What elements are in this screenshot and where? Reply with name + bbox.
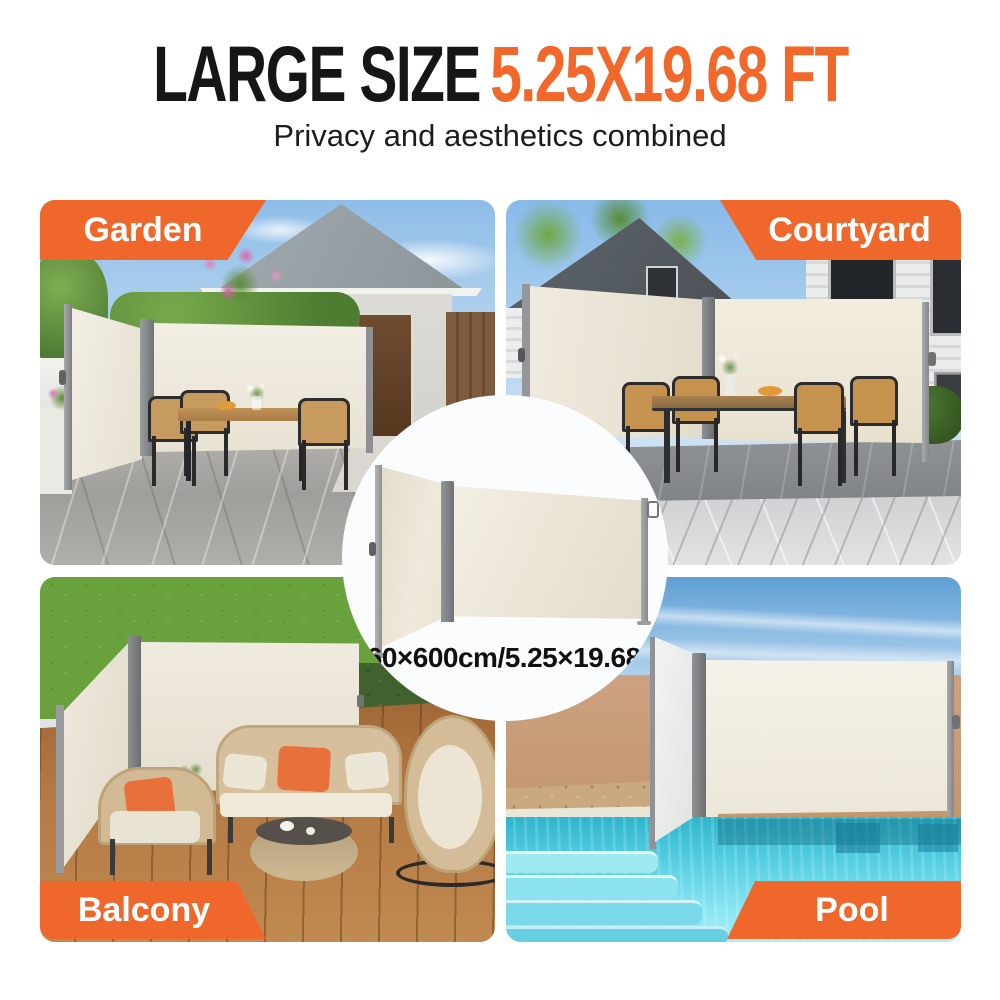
garden-chair-legs — [302, 440, 348, 490]
pool-water-shadow — [836, 823, 880, 853]
balcony-sofa-cushion — [222, 753, 267, 791]
balcony-egg-chair-cushion — [418, 745, 482, 849]
courtyard-vase — [725, 374, 735, 396]
balcony-coffee-table-top — [256, 817, 352, 845]
scene-label-courtyard: Courtyard — [720, 200, 961, 260]
balcony-orange-pillow — [277, 746, 331, 793]
product-left-pole — [375, 465, 382, 657]
scene-label-text: Garden — [83, 211, 202, 250]
product-marketing-image: LARGE SIZE5.25X19.68 FT Privacy and aest… — [0, 0, 1000, 1000]
garden-chair — [298, 398, 350, 446]
center-product-badge: 160×600cm/5.25×19.68ft — [342, 395, 668, 721]
dimension-text: 160×600cm/5.25×19.68ft — [342, 642, 668, 674]
pool-awning-center-post — [692, 653, 706, 817]
scene-label-text: Courtyard — [768, 211, 930, 250]
garden-fruit-bowl — [216, 401, 236, 410]
garden-vase — [252, 396, 261, 410]
courtyard-chair — [794, 382, 844, 434]
courtyard-chair-legs — [798, 428, 842, 486]
balcony-awning-front-pole — [56, 705, 64, 873]
product-right-handle — [647, 501, 659, 518]
courtyard-chair-legs — [854, 420, 896, 476]
title-size-text: LARGE SIZE — [153, 29, 480, 118]
scene-label-pool: Pool — [727, 881, 961, 939]
product-main-panel — [454, 486, 643, 619]
pool-step — [506, 851, 658, 873]
scene-label-balcony: Balcony — [40, 881, 266, 939]
pool-awning-main-panel — [706, 660, 947, 814]
balcony-awning-bracket — [357, 695, 364, 707]
courtyard-window — [930, 252, 961, 336]
scene-label-text: Balcony — [78, 891, 210, 930]
courtyard-fruit-bowl — [758, 386, 782, 396]
garden-table-top — [178, 408, 304, 421]
garden-awning-left-pole — [64, 304, 72, 490]
courtyard-awning-left-pole — [522, 284, 530, 406]
balcony-sofa-seat — [220, 793, 392, 817]
garden-awning-side-panel — [72, 308, 142, 480]
subtitle: Privacy and aesthetics combined — [0, 118, 1000, 154]
product-left-handle — [369, 542, 376, 556]
title-dimension-text: 5.25X19.68 FT — [490, 29, 848, 118]
garden-awning-handle — [59, 370, 66, 385]
product-right-foot — [637, 621, 651, 625]
page-title: LARGE SIZE5.25X19.68 FT — [0, 34, 1000, 113]
courtyard-chair — [850, 376, 898, 426]
balcony-teapot — [280, 821, 294, 831]
header: LARGE SIZE5.25X19.68 FT — [0, 34, 1000, 113]
scene-label-text: Pool — [815, 891, 889, 930]
pool-water-shadow — [918, 824, 958, 852]
courtyard-awning-handle — [518, 348, 525, 362]
garden-table-legs — [186, 421, 304, 481]
pool-awning-end-handle — [952, 715, 960, 729]
product-side-panel — [382, 467, 443, 647]
pool-step — [506, 875, 678, 899]
courtyard-awning-end-handle — [928, 352, 936, 366]
courtyard-awning-end-pole — [922, 302, 929, 462]
product-center-post — [441, 481, 454, 622]
garden-awning-end-pole — [366, 327, 373, 453]
pool-step — [506, 900, 702, 925]
balcony-awning-center-post — [128, 636, 141, 782]
pool-awning-end-pole — [947, 661, 954, 817]
balcony-armchair-legs — [110, 839, 212, 875]
pool-step — [506, 926, 728, 942]
balcony-teacup — [306, 827, 315, 835]
balcony-sofa-cushion — [344, 751, 390, 791]
scene-label-garden: Garden — [40, 200, 266, 260]
